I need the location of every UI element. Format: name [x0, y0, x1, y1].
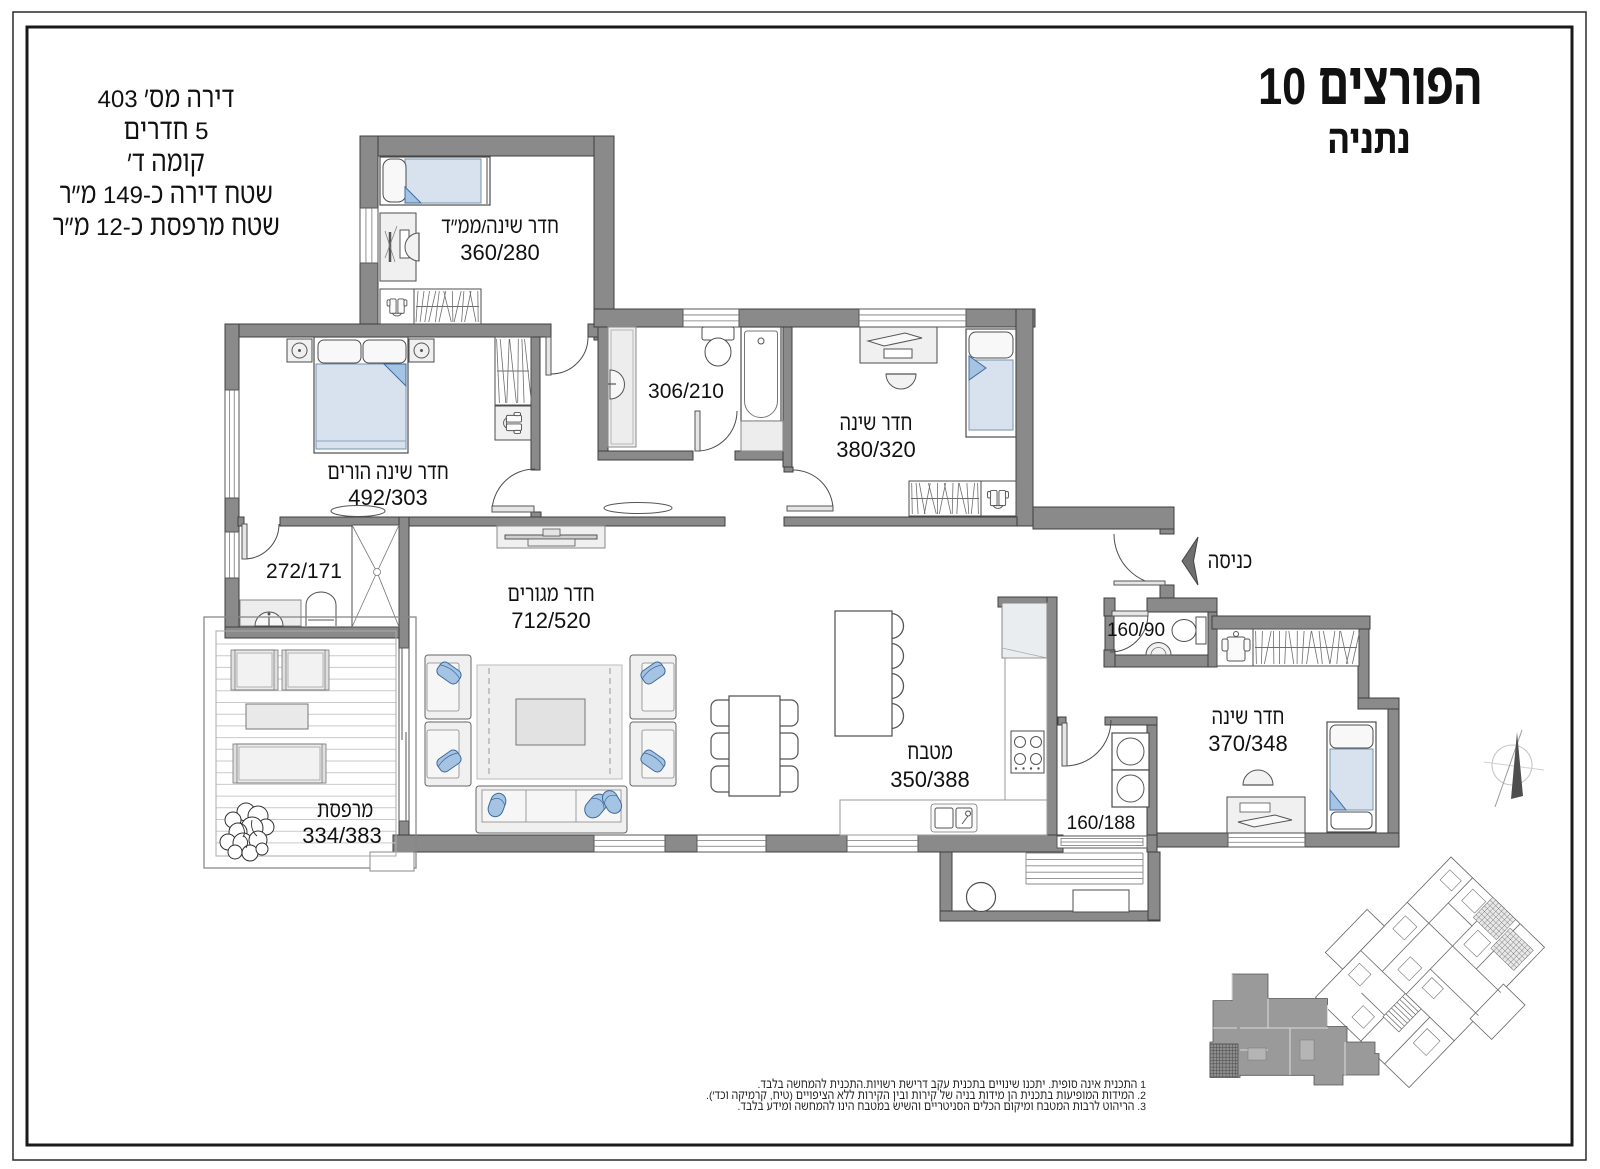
svg-text:492/303: 492/303	[348, 485, 428, 510]
svg-text:306/210: 306/210	[648, 380, 724, 403]
svg-text:334/383: 334/383	[302, 823, 382, 848]
svg-text:160/188: 160/188	[1067, 813, 1136, 834]
svg-text:712/520: 712/520	[511, 608, 591, 633]
svg-text:350/388: 350/388	[890, 767, 970, 792]
svg-text:380/320: 380/320	[836, 437, 916, 462]
svg-text:360/280: 360/280	[460, 240, 540, 265]
svg-text:160/90: 160/90	[1107, 620, 1165, 641]
svg-text:272/171: 272/171	[266, 560, 342, 583]
svg-text:370/348: 370/348	[1208, 731, 1288, 756]
